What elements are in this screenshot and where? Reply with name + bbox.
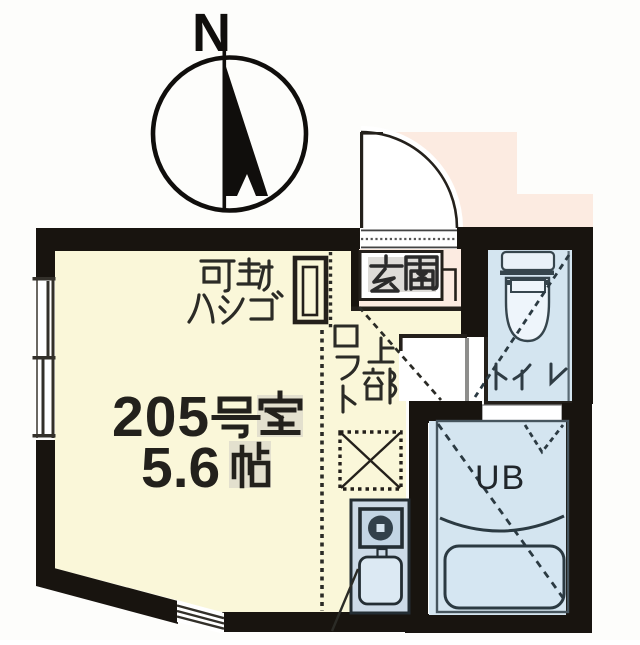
- svg-text:5.6: 5.6: [141, 436, 220, 500]
- svg-text:N: N: [192, 3, 231, 63]
- svg-text:UB: UB: [475, 459, 526, 497]
